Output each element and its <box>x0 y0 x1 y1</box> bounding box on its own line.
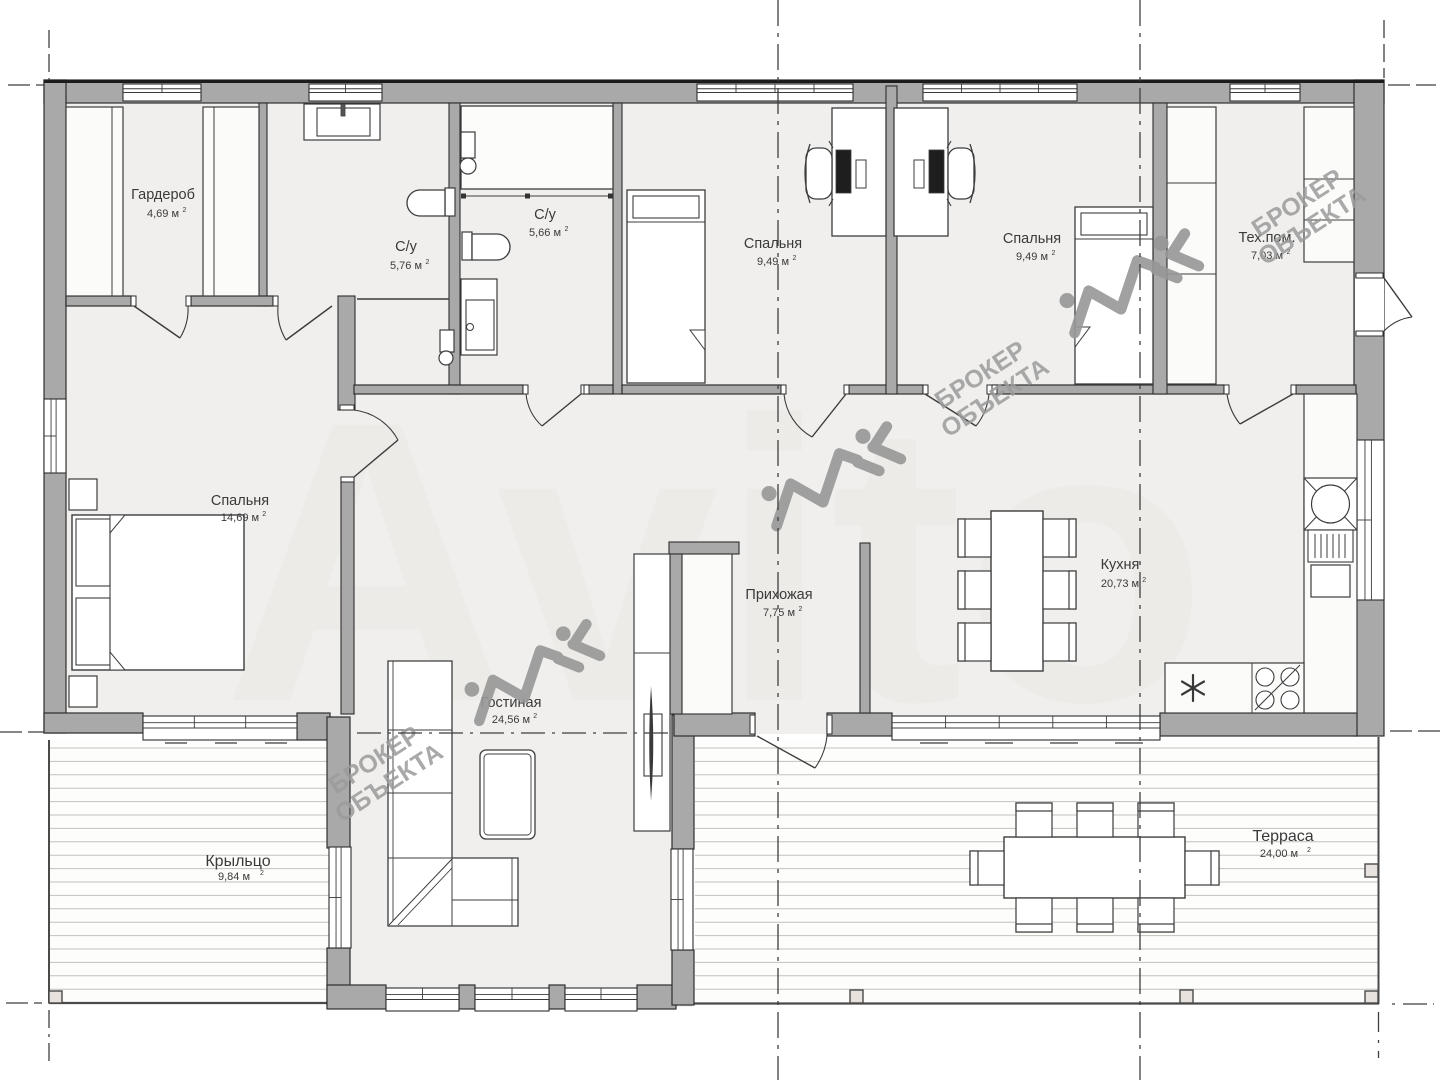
svg-text:Гардероб: Гардероб <box>131 187 195 203</box>
svg-text:2: 2 <box>1052 250 1056 257</box>
svg-text:2: 2 <box>262 511 266 518</box>
svg-text:2: 2 <box>565 226 569 233</box>
svg-text:Терраса: Терраса <box>1252 828 1313 845</box>
svg-text:7,75 м: 7,75 м <box>763 607 795 619</box>
svg-text:2: 2 <box>426 259 430 266</box>
svg-text:2: 2 <box>1307 847 1311 854</box>
svg-text:2: 2 <box>793 255 797 262</box>
svg-text:С/у: С/у <box>395 239 418 255</box>
svg-text:2: 2 <box>1142 577 1146 584</box>
svg-text:20,73 м: 20,73 м <box>1101 578 1139 590</box>
svg-text:Спальня: Спальня <box>211 493 269 509</box>
svg-text:2: 2 <box>533 713 537 720</box>
svg-text:С/у: С/у <box>534 207 557 223</box>
svg-text:Спальня: Спальня <box>1003 231 1061 247</box>
svg-text:2: 2 <box>260 870 264 877</box>
svg-text:9,49 м: 9,49 м <box>1016 251 1048 263</box>
svg-text:Кухня: Кухня <box>1101 557 1140 573</box>
svg-text:4,69 м: 4,69 м <box>147 208 179 220</box>
svg-text:5,66 м: 5,66 м <box>529 227 561 239</box>
svg-text:Прихожая: Прихожая <box>745 587 812 603</box>
svg-text:14,69 м: 14,69 м <box>221 512 259 524</box>
svg-text:2: 2 <box>183 207 187 214</box>
svg-text:24,00 м: 24,00 м <box>1260 848 1298 860</box>
svg-text:5,76 м: 5,76 м <box>390 260 422 272</box>
svg-text:2: 2 <box>799 606 803 613</box>
svg-text:Крыльцо: Крыльцо <box>205 853 270 870</box>
svg-text:Спальня: Спальня <box>744 236 802 252</box>
svg-text:24,56 м: 24,56 м <box>492 714 530 726</box>
svg-text:9,49 м: 9,49 м <box>757 256 789 268</box>
svg-text:9,84 м: 9,84 м <box>218 871 250 883</box>
